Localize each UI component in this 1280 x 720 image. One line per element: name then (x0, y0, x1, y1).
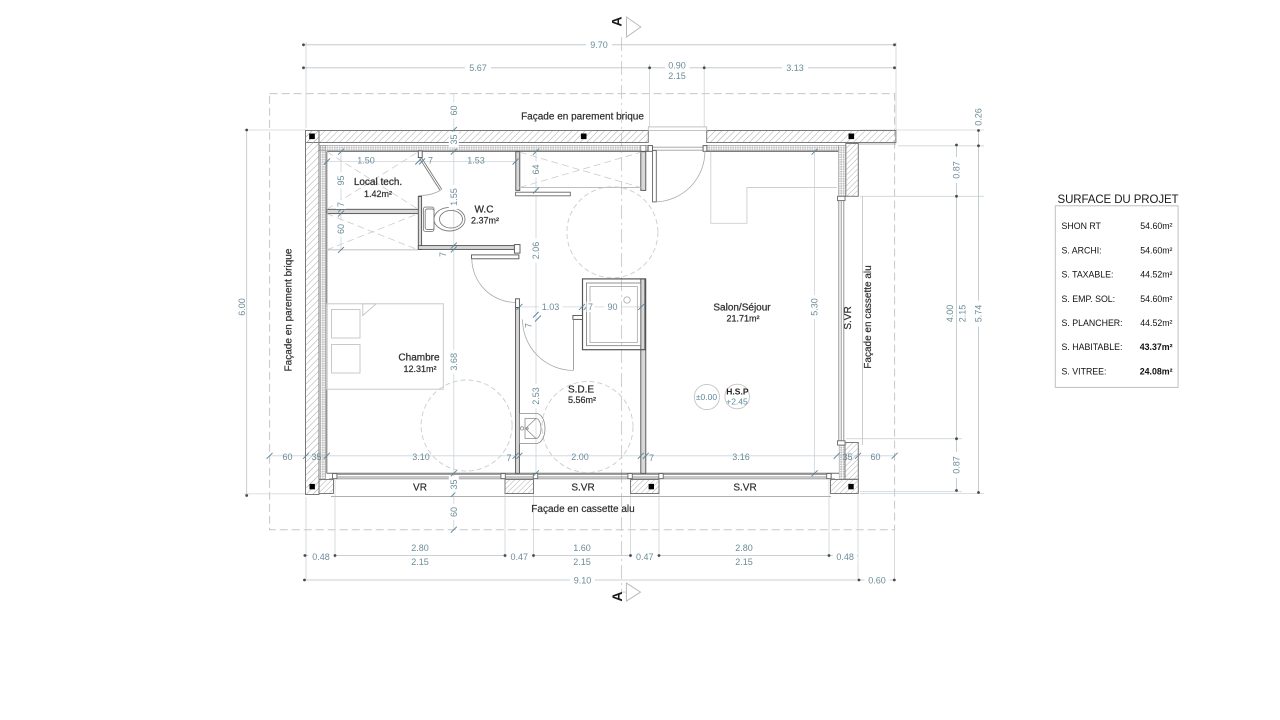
svg-text:1.53: 1.53 (467, 156, 485, 166)
svg-text:VR: VR (413, 483, 427, 494)
svg-text:SHON RT: SHON RT (1062, 221, 1102, 231)
svg-text:54.60m²: 54.60m² (1140, 294, 1172, 304)
svg-text:W.C: W.C (475, 205, 494, 216)
svg-text:7: 7 (649, 453, 654, 463)
svg-text:A: A (609, 16, 625, 26)
svg-text:S.D.E: S.D.E (568, 385, 594, 396)
svg-text:44.52m²: 44.52m² (1140, 270, 1172, 280)
svg-text:3.13: 3.13 (786, 63, 804, 73)
svg-text:95: 95 (336, 175, 346, 185)
svg-text:S. ARCHI:: S. ARCHI: (1062, 245, 1102, 255)
svg-text:2.15: 2.15 (668, 71, 686, 81)
svg-text:S. EMP. SOL:: S. EMP. SOL: (1062, 294, 1116, 304)
svg-text:S. PLANCHER:: S. PLANCHER: (1062, 318, 1123, 328)
svg-text:5.74: 5.74 (974, 305, 984, 323)
svg-text:2.15: 2.15 (411, 557, 429, 567)
svg-text:43.37m²: 43.37m² (1140, 342, 1173, 352)
svg-text:±0.00: ±0.00 (696, 392, 717, 402)
svg-text:Salon/Séjour: Salon/Séjour (713, 303, 771, 314)
svg-text:Façade en cassette alu: Façade en cassette alu (863, 265, 874, 368)
svg-text:1.42m²: 1.42m² (364, 189, 392, 199)
svg-text:0.48: 0.48 (836, 552, 854, 562)
svg-text:44.52m²: 44.52m² (1140, 318, 1172, 328)
svg-text:1.03: 1.03 (542, 302, 560, 312)
svg-text:0.26: 0.26 (974, 108, 984, 126)
svg-text:+2.45: +2.45 (726, 397, 748, 407)
svg-text:35: 35 (449, 479, 459, 489)
svg-text:54.60m²: 54.60m² (1140, 245, 1172, 255)
svg-text:2.80: 2.80 (735, 543, 753, 553)
svg-text:5.30: 5.30 (810, 298, 820, 316)
svg-text:2.80: 2.80 (411, 543, 429, 553)
svg-text:7: 7 (588, 302, 593, 312)
svg-text:7: 7 (506, 453, 511, 463)
svg-text:60: 60 (870, 452, 880, 462)
svg-text:1.60: 1.60 (573, 543, 591, 553)
svg-text:60: 60 (336, 224, 346, 234)
svg-text:Local tech.: Local tech. (354, 177, 402, 188)
svg-text:4.00: 4.00 (945, 305, 955, 323)
svg-text:0.47: 0.47 (511, 552, 529, 562)
svg-text:Façade en cassette alu: Façade en cassette alu (531, 504, 634, 515)
svg-text:60: 60 (449, 507, 459, 517)
svg-text:S. HABITABLE:: S. HABITABLE: (1062, 342, 1123, 352)
svg-text:H.S.P: H.S.P (726, 387, 749, 397)
svg-text:S.VR: S.VR (843, 306, 854, 329)
svg-text:0.47: 0.47 (636, 552, 654, 562)
svg-text:7: 7 (428, 156, 433, 166)
svg-text:2.15: 2.15 (735, 557, 753, 567)
svg-text:6.00: 6.00 (237, 298, 247, 316)
svg-text:3.10: 3.10 (412, 452, 430, 462)
svg-text:5.56m²: 5.56m² (568, 395, 596, 405)
svg-text:9.70: 9.70 (590, 40, 608, 50)
svg-text:7: 7 (438, 252, 448, 257)
svg-text:21.71m²: 21.71m² (726, 314, 759, 324)
svg-text:60: 60 (449, 105, 459, 115)
svg-text:0.48: 0.48 (312, 552, 330, 562)
svg-text:5.67: 5.67 (469, 63, 487, 73)
svg-text:3.16: 3.16 (732, 452, 750, 462)
svg-text:0.90: 0.90 (668, 61, 686, 71)
svg-text:Chambre: Chambre (398, 353, 440, 364)
svg-text:64: 64 (531, 164, 541, 174)
svg-text:S. TAXABLE:: S. TAXABLE: (1062, 270, 1114, 280)
svg-text:2.00: 2.00 (571, 452, 589, 462)
svg-text:SURFACE DU PROJET: SURFACE DU PROJET (1058, 194, 1179, 206)
svg-text:54.60m²: 54.60m² (1140, 221, 1172, 231)
svg-text:3.68: 3.68 (449, 353, 459, 371)
svg-text:0.87: 0.87 (952, 161, 962, 179)
svg-text:2.37m²: 2.37m² (471, 216, 499, 226)
svg-text:35: 35 (842, 452, 852, 462)
svg-text:2.06: 2.06 (531, 242, 541, 260)
svg-text:S. VITREE:: S. VITREE: (1062, 366, 1107, 376)
svg-text:Façade en parement brique: Façade en parement brique (521, 112, 644, 123)
svg-text:24.08m²: 24.08m² (1140, 366, 1173, 376)
svg-text:0.87: 0.87 (952, 456, 962, 474)
svg-text:90: 90 (607, 302, 617, 312)
svg-text:1.50: 1.50 (357, 156, 375, 166)
svg-text:2.15: 2.15 (958, 305, 968, 323)
svg-text:35: 35 (311, 452, 321, 462)
svg-text:2.15: 2.15 (573, 557, 591, 567)
svg-text:12.31m²: 12.31m² (403, 364, 436, 374)
svg-text:9.10: 9.10 (574, 575, 592, 585)
svg-text:35: 35 (449, 134, 459, 144)
svg-text:Façade en parement brique: Façade en parement brique (284, 248, 295, 371)
svg-text:S.VR: S.VR (571, 483, 594, 494)
svg-text:2.53: 2.53 (531, 387, 541, 405)
svg-text:0.60: 0.60 (868, 575, 886, 585)
svg-text:A: A (609, 591, 625, 601)
svg-text:60: 60 (282, 452, 292, 462)
svg-text:7: 7 (524, 323, 534, 328)
svg-text:S.VR: S.VR (733, 483, 756, 494)
svg-text:1.55: 1.55 (449, 188, 459, 206)
svg-text:7: 7 (336, 202, 346, 207)
